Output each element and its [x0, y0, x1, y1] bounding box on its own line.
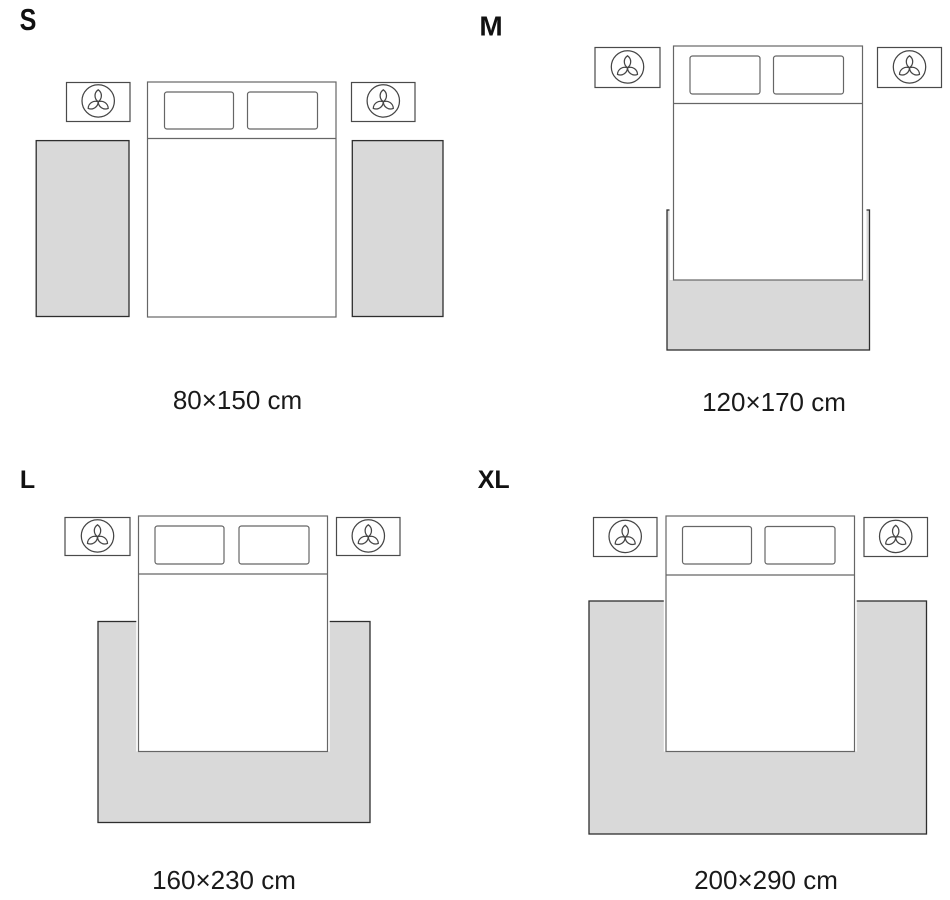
svg-text:160×230 cm: 160×230 cm: [152, 865, 296, 895]
svg-text:200×290 cm: 200×290 cm: [694, 865, 838, 895]
svg-text:S: S: [20, 1, 37, 36]
svg-text:L: L: [20, 466, 35, 494]
svg-text:120×170 cm: 120×170 cm: [702, 387, 846, 417]
svg-text:80×150 cm: 80×150 cm: [173, 385, 302, 415]
svg-text:M: M: [479, 10, 502, 41]
svg-text:XL: XL: [478, 466, 510, 494]
